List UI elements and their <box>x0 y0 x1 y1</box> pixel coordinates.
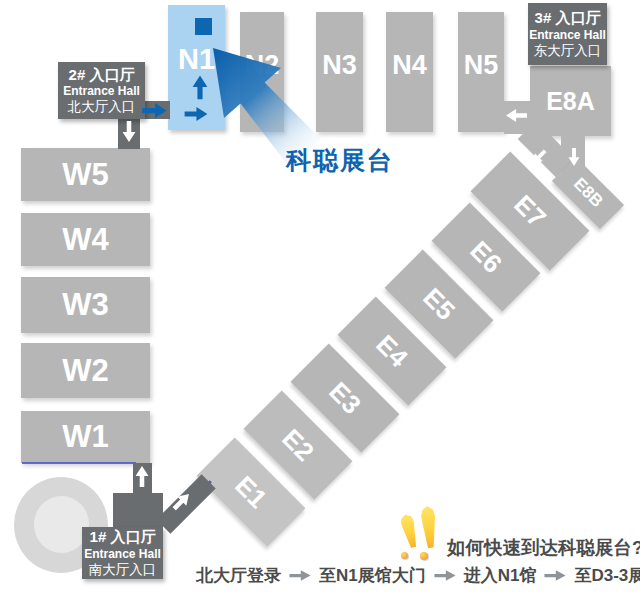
hall-label: E8A <box>546 87 595 116</box>
hall-label: E7 <box>508 189 552 233</box>
hall-label: E5 <box>417 282 461 326</box>
hall-e8a: E8A <box>530 66 611 136</box>
hall-label: N4 <box>392 50 427 81</box>
route-step: 至N1展馆大门 <box>319 564 426 587</box>
plaza-circle-inner <box>34 496 89 553</box>
hall-label: E8B <box>569 174 607 212</box>
route-arrow-icon <box>286 569 314 582</box>
question-headline: 如何快速到达科聪展台? <box>447 535 640 560</box>
route-step: 北大厅登录 <box>196 564 281 587</box>
route-step: 进入N1馆 <box>464 564 537 587</box>
hall-w4: W4 <box>21 213 150 266</box>
entrance-title: 1# 入口厅 <box>82 528 163 546</box>
entrance-hall-2: 2# 入口厅 Entrance Hall 北大厅入口 <box>58 62 145 119</box>
hall-w5: W5 <box>21 148 150 201</box>
hall-label: W4 <box>62 222 109 258</box>
entrance-hall-1: 1# 入口厅 Entrance Hall 南大厅入口 <box>82 527 163 579</box>
hall-label: E6 <box>464 235 508 279</box>
hall-label: W3 <box>62 287 109 323</box>
entrance-subtitle: Entrance Hall <box>82 547 163 561</box>
attention-icon <box>420 505 438 548</box>
hall-label: E2 <box>276 423 320 467</box>
hall-label: N5 <box>464 50 499 81</box>
hall-label: W2 <box>62 353 109 389</box>
hall-n4: N4 <box>386 12 433 132</box>
hall-label: W5 <box>62 157 109 193</box>
hall-n5: N5 <box>458 12 504 132</box>
up-arrow-icon <box>136 466 149 488</box>
booth-marker-icon <box>195 18 212 35</box>
entrance-subtitle: Entrance Hall <box>58 84 145 98</box>
entrance-subtitle: Entrance Hall <box>528 28 607 42</box>
hall-label: E3 <box>323 376 367 420</box>
down-arrow-icon <box>568 148 580 166</box>
hall-w3: W3 <box>21 277 150 333</box>
entrance-caption: 北大厅入口 <box>58 99 145 115</box>
exhibition-floor-map: W5 W4 W3 W2 W1 N2 N3 N4 N5 N1 2# 入口厅 Ent… <box>0 0 640 598</box>
entrance-title: 3# 入口厅 <box>528 9 607 27</box>
hall-w1: W1 <box>21 411 150 463</box>
hall-label: E4 <box>370 329 414 373</box>
attention-icon <box>401 552 408 559</box>
entrance-caption: 东大厅入口 <box>528 43 607 59</box>
booth-name-label: 科聪展台 <box>286 144 394 177</box>
down-arrow-icon <box>123 121 136 143</box>
attention-icon <box>399 513 420 549</box>
entrance-hall-3: 3# 入口厅 Entrance Hall 东大厅入口 <box>528 3 607 65</box>
right-arrow-icon <box>142 103 167 118</box>
hall-w2: W2 <box>21 343 150 398</box>
entrance-title: 2# 入口厅 <box>58 66 145 84</box>
w1-edge-line <box>22 462 136 464</box>
route-arrow-icon <box>541 569 569 582</box>
route-arrow-icon <box>431 569 459 582</box>
route-steps-bar: 北大厅登录 至N1展馆大门 进入N1馆 至D3-3展台 <box>196 562 640 588</box>
hall-label: E1 <box>229 470 273 514</box>
attention-icon <box>420 552 428 560</box>
route-step: 至D3-3展台 <box>574 564 640 587</box>
left-arrow-icon <box>506 109 527 122</box>
entrance-caption: 南大厅入口 <box>82 562 163 578</box>
hall-label: W1 <box>62 419 109 455</box>
